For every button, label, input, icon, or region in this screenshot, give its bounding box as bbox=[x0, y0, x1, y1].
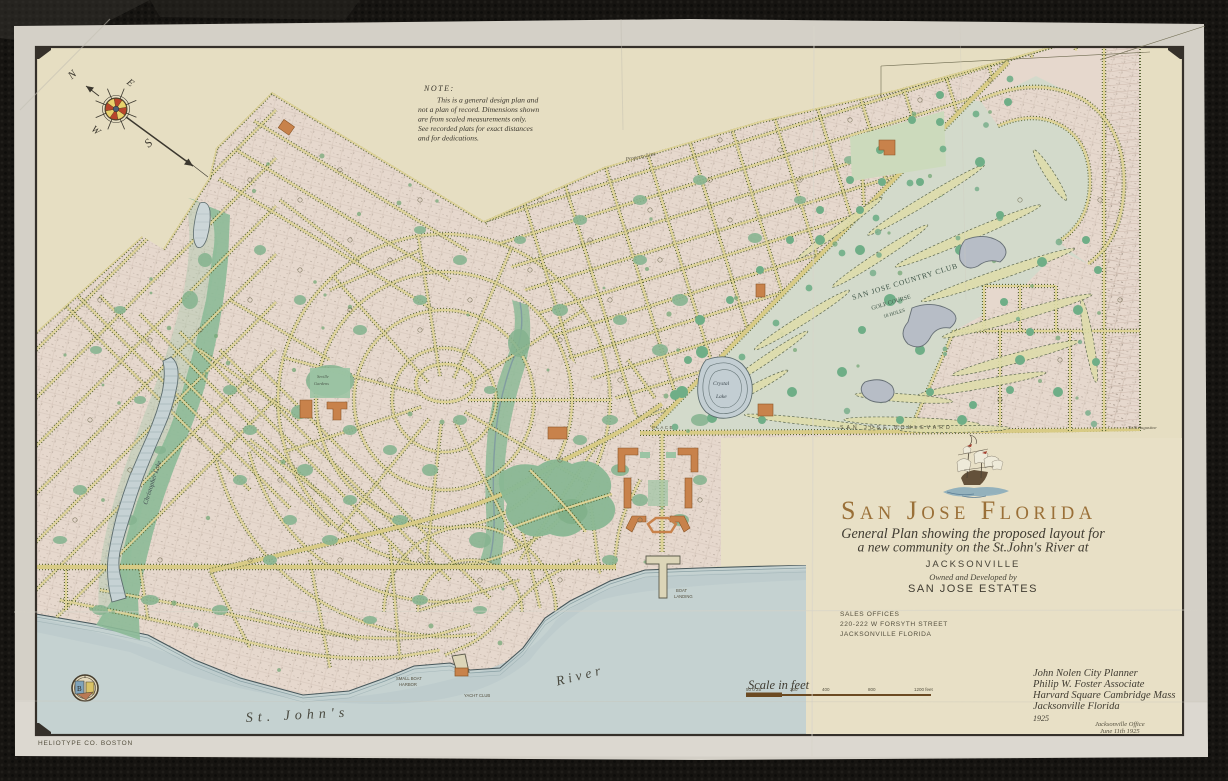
svg-text:Gardens: Gardens bbox=[314, 381, 329, 386]
svg-text:Crystal: Crystal bbox=[713, 381, 730, 387]
svg-text:1925: 1925 bbox=[1033, 714, 1049, 723]
svg-text:Jacksonville Office: Jacksonville Office bbox=[1095, 721, 1145, 728]
svg-text:PLACE: PLACE bbox=[652, 425, 674, 430]
svg-text:YACHT CLUB: YACHT CLUB bbox=[464, 693, 490, 698]
svg-text:NOTE:: NOTE: bbox=[423, 84, 455, 93]
svg-text:HARBOR: HARBOR bbox=[399, 682, 417, 687]
svg-text:and for dedications.: and for dedications. bbox=[418, 134, 479, 143]
svg-text:Seville: Seville bbox=[317, 374, 329, 379]
svg-text:SAN JOSE ESTATES: SAN JOSE ESTATES bbox=[908, 583, 1038, 595]
svg-text:a new community on the St.John: a new community on the St.John's River a… bbox=[858, 540, 1090, 555]
svg-text:1200 feet: 1200 feet bbox=[914, 687, 934, 692]
svg-text:50 0 25: 50 0 25 bbox=[746, 687, 762, 692]
svg-text:SAN JOSE BOULEVARD: SAN JOSE BOULEVARD bbox=[840, 425, 953, 431]
svg-text:SMALL BOAT: SMALL BOAT bbox=[396, 676, 422, 681]
svg-text:Lake: Lake bbox=[715, 394, 727, 400]
svg-text:not a plan of record. Dimensi: not a plan of record. Dimensions shown bbox=[418, 105, 539, 114]
svg-text:BOAT: BOAT bbox=[676, 588, 688, 593]
svg-text:See recorded plats for exact d: See recorded plats for exact distances bbox=[418, 124, 533, 133]
svg-text:JACKSONVILLE: JACKSONVILLE bbox=[926, 559, 1021, 570]
svg-text:JACKSONVILLE FLORIDA: JACKSONVILLE FLORIDA bbox=[840, 631, 932, 638]
svg-text:Owned and Developed by: Owned and Developed by bbox=[929, 572, 1017, 582]
svg-text:400: 400 bbox=[822, 687, 830, 692]
svg-text:June 11th 1925: June 11th 1925 bbox=[1100, 728, 1140, 735]
svg-text:LANDING: LANDING bbox=[674, 594, 693, 599]
svg-text:This is a general design plan: This is a general design plan and bbox=[437, 96, 538, 105]
svg-text:are from scaled measurements o: are from scaled measurements only. bbox=[418, 115, 527, 124]
svg-text:John Nolen City Planner: John Nolen City Planner bbox=[1033, 668, 1139, 679]
svg-text:Jacksonville Florida: Jacksonville Florida bbox=[1033, 701, 1120, 712]
svg-text:Harvard Square Cambridge Mass: Harvard Square Cambridge Mass bbox=[1032, 690, 1175, 701]
svg-text:800: 800 bbox=[868, 687, 876, 692]
svg-text:200: 200 bbox=[790, 687, 798, 692]
svg-text:To St Augustine: To St Augustine bbox=[1128, 425, 1157, 430]
svg-text:SALES OFFICES: SALES OFFICES bbox=[840, 611, 899, 618]
svg-text:220-222 W FORSYTH STREET: 220-222 W FORSYTH STREET bbox=[840, 621, 948, 628]
svg-text:B: B bbox=[77, 685, 82, 693]
svg-text:HELIOTYPE CO. BOSTON: HELIOTYPE CO. BOSTON bbox=[38, 740, 133, 747]
svg-text:Philip W. Foster Associate: Philip W. Foster Associate bbox=[1032, 679, 1145, 690]
